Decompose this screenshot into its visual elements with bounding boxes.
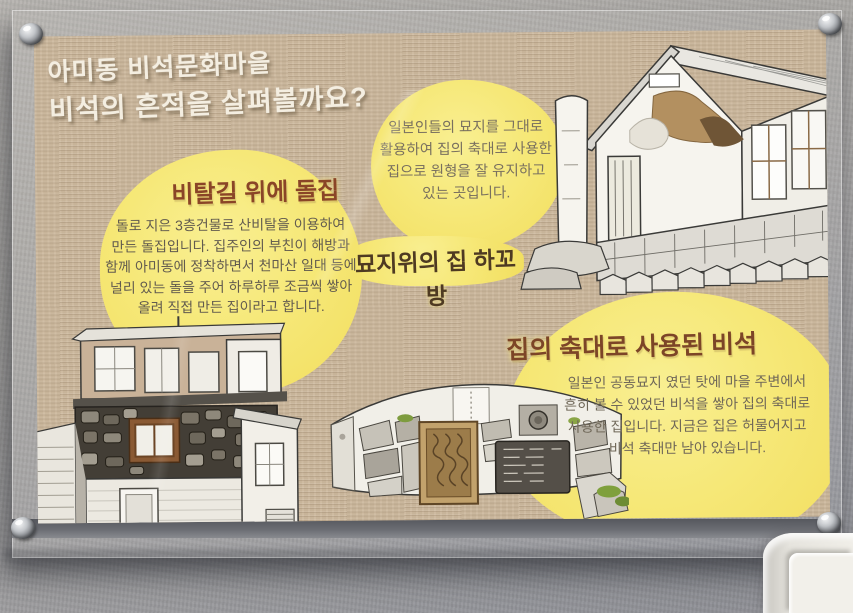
screw-icon (817, 512, 841, 534)
text-line: 있는 곳입니다. (422, 185, 510, 202)
hakobang-note: 일본인들의 묘지를 그대로 활용하여 집의 축대로 사용한 집으로 원형을 잘 … (351, 116, 582, 206)
poster-title-line2: 비석의 흔적을 살펴볼까요? (49, 84, 369, 125)
wall-shadow (4, 550, 844, 568)
stone-house-illustration (34, 313, 315, 523)
stone-house-body: 돌로 지은 3층건물로 산비탈을 이용하여 만든 돌집입니다. 집주인의 부친이… (91, 214, 370, 319)
text-line: 비석 축대만 남아 있습니다. (609, 439, 766, 456)
wall-molding-plate (789, 553, 853, 613)
biseok-body: 일본인 공동묘지 였던 탓에 마을 주변에서 흔히 볼 수 있었던 비석을 쌓아… (541, 370, 830, 461)
text-line: 사용한 집입니다. 지금은 집은 허물어지고 (568, 417, 807, 435)
poster-title: 아미동 비석문화마을 비석의 흔적을 살펴볼까요? (47, 47, 368, 125)
screw-icon (19, 23, 43, 45)
wall-molding (763, 533, 853, 613)
text-line: 널리 있는 돌을 주어 하루하루 조금씩 쌓아 (110, 277, 352, 295)
text-line: 흔히 볼 수 있었던 비석을 쌓아 집의 축대로 (564, 395, 810, 413)
text-line: 함께 아미동에 정착하면서 천마산 일대 등에 (105, 257, 356, 275)
poster-title-line1: 아미동 비석문화마을 (47, 47, 367, 86)
biseok-heading: 집의 축대로 사용된 비석 (488, 324, 775, 367)
text-line: 집으로 원형을 잘 유지하고 (387, 163, 546, 180)
text-line: 일본인 공동묘지 였던 탓에 마을 주변에서 (568, 373, 807, 391)
text-line: 일본인들의 묘지를 그대로 (388, 119, 543, 136)
hakobang-label: 묘지위의 집 하꼬방 (347, 240, 525, 314)
text-line: 활용하여 집의 축대로 사용한 (380, 141, 552, 159)
text-line: 만든 돌집입니다. 집주인의 부친이 해방과 (111, 236, 350, 254)
screw-icon (11, 517, 35, 539)
text-line: 올려 직접 만든 집이라고 합니다. (138, 298, 325, 316)
photo-of-information-board: 아미동 비석문화마을 비석의 흔적을 살펴볼까요? 일본인들의 묘지를 그대로 … (0, 0, 853, 613)
info-poster: 아미동 비석문화마을 비석의 흔적을 살펴볼까요? 일본인들의 묘지를 그대로 … (34, 30, 830, 524)
screw-icon (818, 13, 842, 35)
text-line: 돌로 지은 3층건물로 산비탈을 이용하여 (116, 216, 346, 234)
stone-house-heading: 비탈길 위에 돌집 (145, 170, 366, 211)
